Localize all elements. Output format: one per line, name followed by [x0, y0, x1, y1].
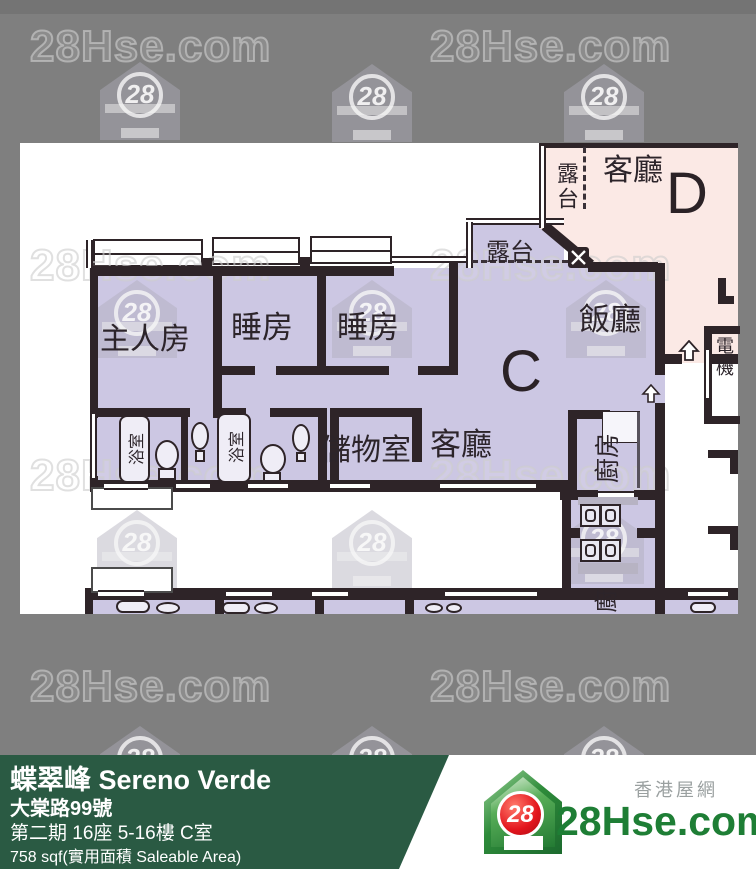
room-label-living: 客廳 — [430, 419, 492, 464]
toilet-icon — [425, 603, 443, 613]
stove-icon — [600, 504, 621, 527]
lift-outline — [91, 487, 173, 510]
bay-window — [310, 236, 392, 264]
estate-address: 大棠路99號 — [10, 792, 112, 821]
wall — [730, 534, 738, 550]
watermark-text: 28Hse.com — [30, 662, 271, 712]
wall — [718, 296, 734, 304]
brand-tagline: 香港屋網 — [634, 776, 718, 802]
unit-info: 第二期 16座 5-16樓 C室 — [10, 818, 213, 845]
toilet-icon — [260, 444, 286, 474]
window — [330, 482, 370, 490]
sink-icon — [292, 424, 310, 452]
door-arrow-icon — [641, 384, 661, 409]
watermark-house-icon: 28 — [332, 510, 412, 588]
stove-icon — [600, 539, 621, 562]
brand-name: 28Hse.com — [556, 798, 756, 845]
sink-icon — [446, 603, 462, 613]
sink-icon — [191, 422, 209, 450]
room-label-dining: 飯廳 — [579, 294, 641, 339]
wall — [213, 270, 222, 418]
wall — [85, 598, 93, 614]
wall — [563, 528, 580, 538]
room-label-kitchen: 廚房 — [588, 427, 624, 489]
counter-edge — [637, 412, 640, 488]
window — [104, 482, 148, 490]
stove-icon — [580, 504, 601, 527]
watermark-house-icon: 28 — [100, 62, 180, 140]
window — [704, 350, 711, 398]
unit-letter-d: D — [666, 160, 708, 227]
wall — [412, 408, 422, 462]
brand-28-badge: 28 — [497, 791, 544, 838]
wall — [704, 416, 740, 424]
window — [248, 482, 288, 490]
wall — [90, 266, 98, 418]
duct-icon — [568, 247, 589, 268]
wall — [203, 258, 212, 268]
wall — [708, 526, 738, 534]
wall — [90, 266, 394, 276]
thin-wall — [539, 146, 546, 228]
watermark-text: 28Hse.com — [430, 662, 671, 712]
room-label-kitchen-lower: 廚 — [587, 576, 621, 626]
window — [90, 414, 97, 478]
saleable-area: 758 sqf(實用面積 Saleable Area) — [10, 843, 241, 867]
wall — [181, 410, 188, 484]
sink-pedestal — [195, 450, 205, 462]
wall — [418, 366, 458, 375]
sink-icon — [222, 602, 250, 614]
wall — [330, 408, 418, 417]
toilet-tank — [158, 468, 176, 480]
room-label-bathroom: 浴室 — [123, 418, 147, 480]
window — [98, 590, 144, 598]
room-label-storage: 儲物室 — [321, 425, 411, 469]
wall — [270, 408, 325, 417]
counter — [578, 563, 638, 574]
wall — [449, 262, 458, 374]
window — [226, 590, 272, 598]
wall — [568, 410, 577, 492]
window — [176, 482, 210, 490]
room-label-bathroom: 浴室 — [223, 416, 247, 478]
sliding-door — [583, 147, 586, 209]
thin-wall — [466, 218, 564, 225]
thin-wall — [392, 256, 470, 263]
sink-pedestal — [296, 452, 306, 462]
wall — [655, 600, 665, 614]
wall — [637, 528, 663, 538]
room-label-balcony: 露台 — [486, 232, 534, 267]
floorplan-image: 28Hse.com 28Hse.com 28Hse.com 28Hse.com … — [0, 0, 756, 869]
wall — [327, 366, 389, 375]
wall — [634, 490, 665, 500]
top-strip — [0, 0, 756, 14]
toilet-tank — [263, 472, 281, 482]
wall — [588, 262, 658, 272]
wall — [405, 600, 414, 614]
stove-icon — [580, 539, 601, 562]
watermark-house-icon: 28 — [332, 64, 412, 142]
room-label-balcony-d: 露台 — [550, 162, 582, 212]
window — [445, 590, 537, 598]
wall — [300, 257, 310, 268]
window — [312, 590, 348, 598]
thin-wall — [86, 240, 93, 268]
toilet-icon — [155, 440, 179, 470]
room-label-living-d: 客廳 — [603, 145, 663, 189]
door-arrow-icon — [678, 340, 700, 367]
watermark-house-icon: 28 — [564, 64, 644, 142]
sink-icon — [690, 602, 716, 613]
window — [440, 482, 536, 490]
wall — [730, 458, 738, 474]
room-label-bedroom: 睡房 — [231, 302, 293, 347]
toilet-icon — [156, 602, 180, 614]
window — [688, 590, 728, 598]
room-label-electrical: 電機 — [711, 336, 737, 380]
toilet-icon — [254, 602, 278, 614]
wall — [213, 366, 255, 375]
room-label-bedroom: 睡房 — [337, 302, 399, 347]
unit-letter-c: C — [500, 338, 542, 405]
wall — [315, 600, 324, 614]
wall — [85, 588, 738, 600]
wall — [708, 450, 738, 458]
sink-icon — [116, 600, 150, 613]
room-label-master-bedroom: 主人房 — [100, 314, 190, 358]
wall — [276, 366, 327, 375]
wall — [562, 500, 571, 590]
wall — [317, 270, 326, 374]
